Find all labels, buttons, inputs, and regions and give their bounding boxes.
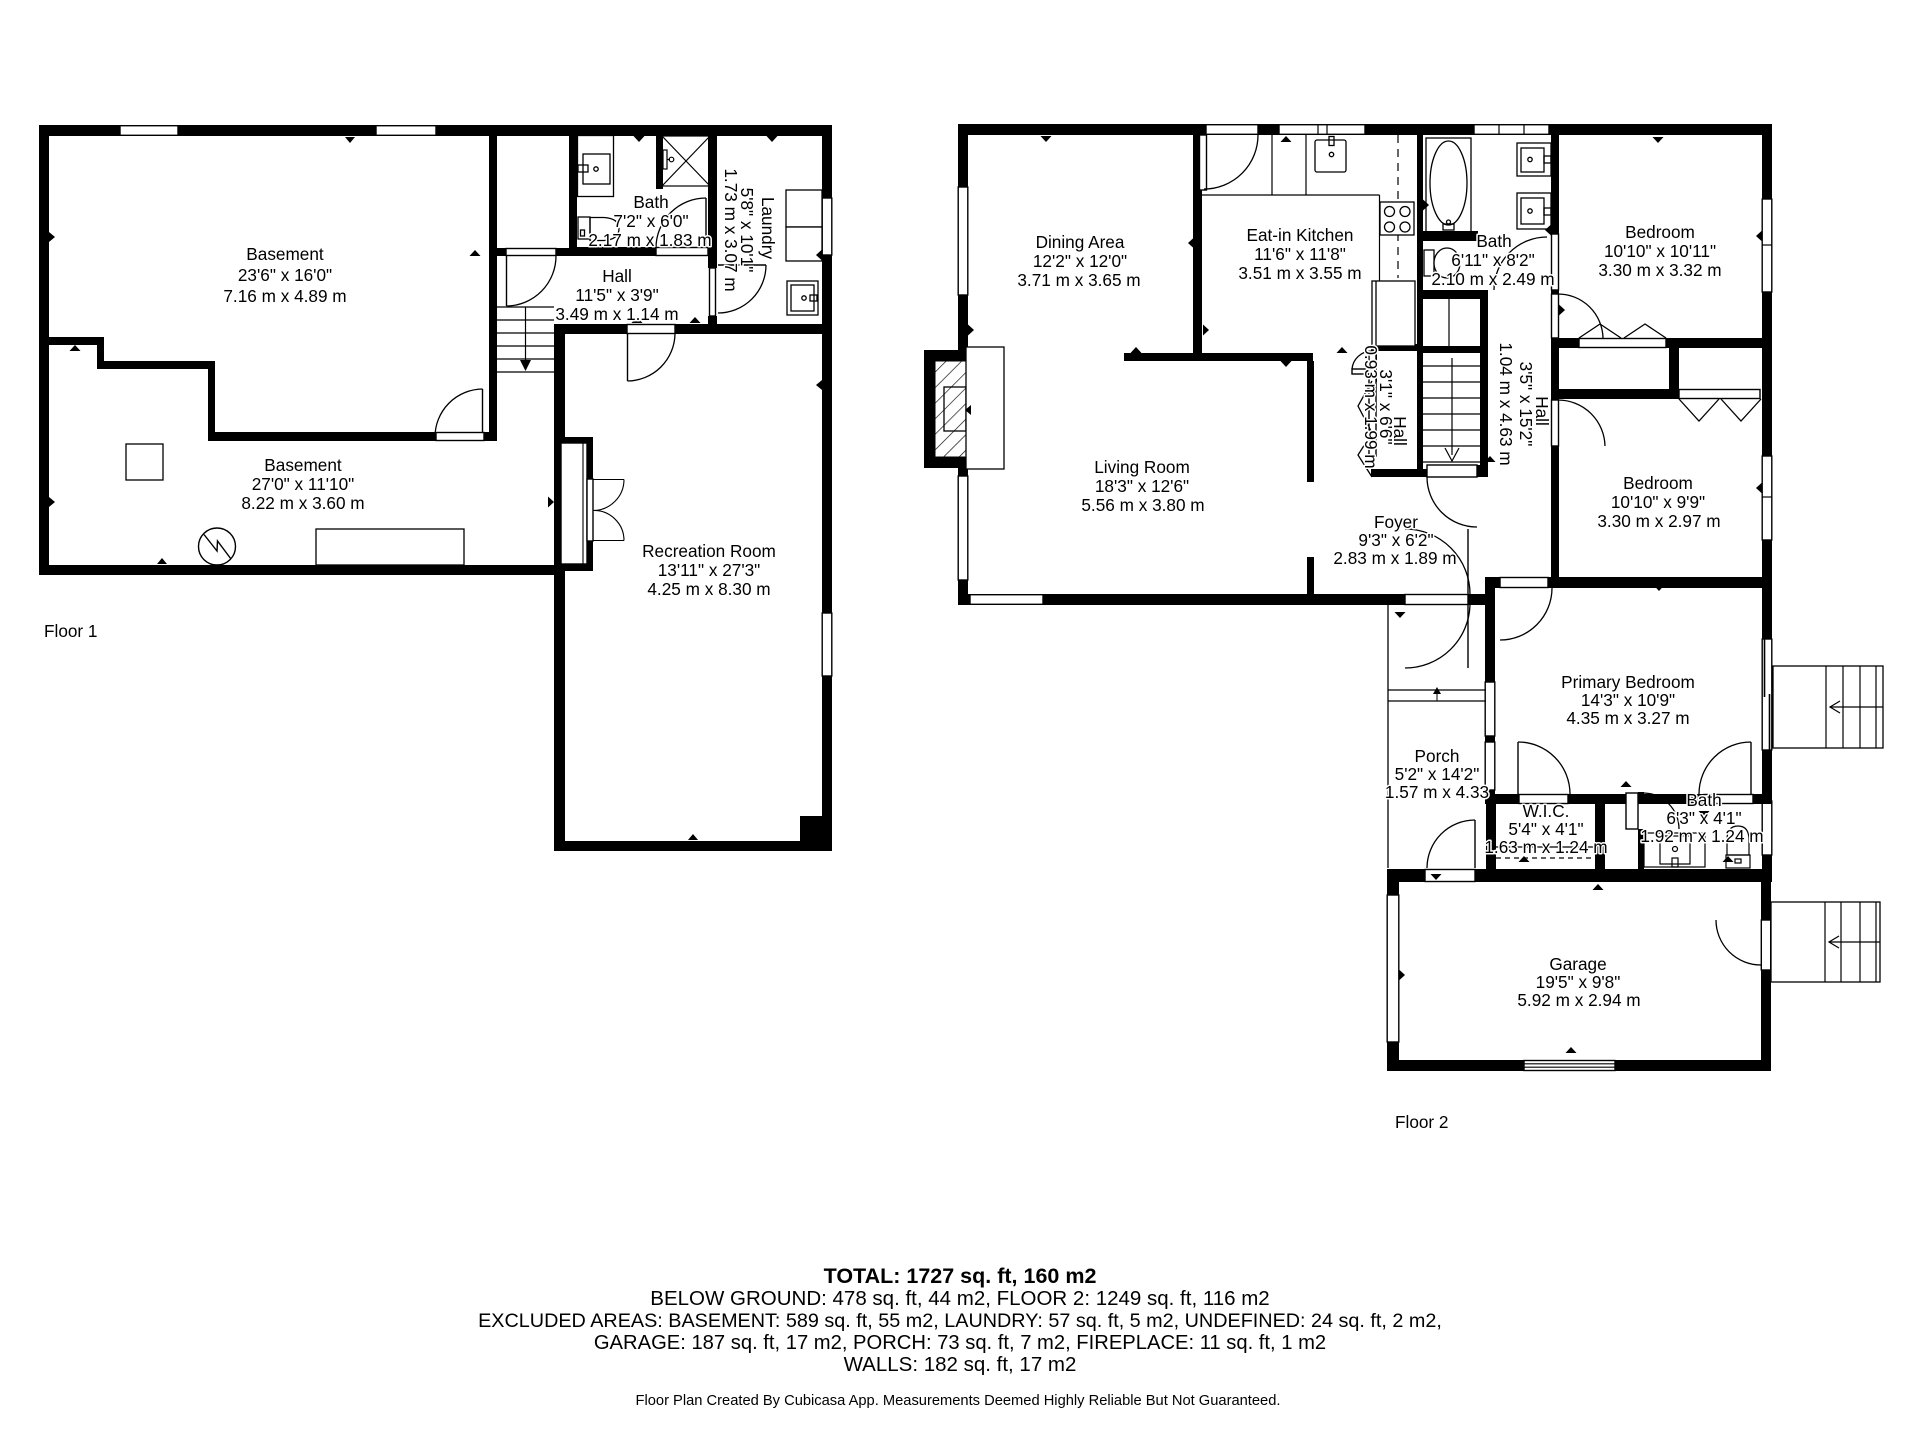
svg-text:Floor 2: Floor 2 xyxy=(1395,1112,1449,1132)
svg-text:8.22 m x 3.60 m: 8.22 m x 3.60 m xyxy=(241,493,364,513)
svg-text:7.16 m x 4.89 m: 7.16 m x 4.89 m xyxy=(223,286,346,306)
svg-text:1.57 m x 4.33: 1.57 m x 4.33 xyxy=(1385,782,1489,802)
svg-text:Primary Bedroom: Primary Bedroom xyxy=(1561,672,1695,692)
svg-text:EXCLUDED AREAS: BASEMENT: 589: EXCLUDED AREAS: BASEMENT: 589 sq. ft, 55… xyxy=(478,1310,1442,1332)
svg-text:Laundry: Laundry xyxy=(758,197,778,260)
svg-text:1.04 m x 4.63 m: 1.04 m x 4.63 m xyxy=(1496,342,1516,465)
svg-text:2.83 m x 1.89 m: 2.83 m x 1.89 m xyxy=(1333,548,1456,568)
svg-text:9'3" x 6'2": 9'3" x 6'2" xyxy=(1358,530,1433,550)
svg-text:3'5" x 15'2": 3'5" x 15'2" xyxy=(1516,362,1536,447)
svg-text:Foyer: Foyer xyxy=(1374,512,1418,532)
svg-text:10'10" x 9'9": 10'10" x 9'9" xyxy=(1611,492,1705,512)
svg-text:5.56 m x 3.80 m: 5.56 m x 3.80 m xyxy=(1081,495,1204,515)
svg-text:3.30 m x 3.32 m: 3.30 m x 3.32 m xyxy=(1598,260,1721,280)
svg-text:5.92 m x 2.94 m: 5.92 m x 2.94 m xyxy=(1517,990,1640,1010)
svg-text:Bath: Bath xyxy=(633,192,668,212)
svg-text:11'6" x 11'8": 11'6" x 11'8" xyxy=(1254,244,1346,264)
svg-text:BELOW GROUND: 478 sq. ft, 44 m: BELOW GROUND: 478 sq. ft, 44 m2, FLOOR 2… xyxy=(650,1287,1269,1310)
svg-text:3.51 m x 3.55 m: 3.51 m x 3.55 m xyxy=(1238,263,1361,283)
svg-text:0.93 m x 1.99 m: 0.93 m x 1.99 m xyxy=(1361,345,1381,468)
svg-text:Recreation Room: Recreation Room xyxy=(642,541,776,561)
svg-text:GARAGE: 187 sq. ft, 17 m2, POR: GARAGE: 187 sq. ft, 17 m2, PORCH: 73 sq.… xyxy=(594,1332,1326,1354)
svg-text:1.63 m x 1.24 m: 1.63 m x 1.24 m xyxy=(1484,837,1607,857)
svg-text:11'5" x 3'9": 11'5" x 3'9" xyxy=(575,285,658,305)
svg-text:6'11" x 8'2": 6'11" x 8'2" xyxy=(1451,250,1534,270)
svg-text:WALLS: 182 sq. ft, 17 m2: WALLS: 182 sq. ft, 17 m2 xyxy=(844,1353,1077,1376)
svg-text:Bedroom: Bedroom xyxy=(1625,222,1695,242)
svg-text:Eat-in Kitchen: Eat-in Kitchen xyxy=(1246,225,1353,245)
svg-text:W.I.C.: W.I.C. xyxy=(1523,801,1570,821)
svg-text:TOTAL: 1727 sq. ft, 160 m2: TOTAL: 1727 sq. ft, 160 m2 xyxy=(824,1264,1097,1288)
svg-text:1.92 m x 1.24 m: 1.92 m x 1.24 m xyxy=(1640,826,1763,846)
svg-text:Bath: Bath xyxy=(1476,231,1511,251)
svg-text:Basement: Basement xyxy=(246,244,324,264)
svg-text:7'2" x 6'0": 7'2" x 6'0" xyxy=(613,211,688,231)
svg-text:3.30 m x 2.97 m: 3.30 m x 2.97 m xyxy=(1597,511,1720,531)
svg-text:Bedroom: Bedroom xyxy=(1623,473,1693,493)
svg-text:2.10 m x 2.49 m: 2.10 m x 2.49 m xyxy=(1431,269,1554,289)
svg-text:19'5" x 9'8": 19'5" x 9'8" xyxy=(1536,972,1621,992)
svg-text:Basement: Basement xyxy=(264,455,342,475)
svg-text:3.71 m x 3.65 m: 3.71 m x 3.65 m xyxy=(1017,270,1140,290)
svg-text:5'2" x 14'2": 5'2" x 14'2" xyxy=(1395,764,1480,784)
svg-text:14'3" x 10'9": 14'3" x 10'9" xyxy=(1581,690,1675,710)
svg-text:12'2" x 12'0": 12'2" x 12'0" xyxy=(1033,251,1127,271)
svg-text:Hall: Hall xyxy=(602,266,632,286)
svg-text:6'3" x 4'1": 6'3" x 4'1" xyxy=(1666,808,1741,828)
svg-text:4.25 m x 8.30 m: 4.25 m x 8.30 m xyxy=(647,579,770,599)
svg-text:Garage: Garage xyxy=(1549,954,1606,974)
svg-text:1.73 m x 3.07 m: 1.73 m x 3.07 m xyxy=(721,168,741,291)
svg-text:23'6" x 16'0": 23'6" x 16'0" xyxy=(238,265,332,285)
svg-text:27'0" x 11'10": 27'0" x 11'10" xyxy=(252,474,355,494)
svg-text:Floor 1: Floor 1 xyxy=(44,621,98,641)
svg-text:Floor Plan Created By Cubicasa: Floor Plan Created By Cubicasa App. Meas… xyxy=(636,1393,1281,1409)
svg-text:Porch: Porch xyxy=(1415,746,1460,766)
svg-text:4.35 m x 3.27 m: 4.35 m x 3.27 m xyxy=(1566,708,1689,728)
svg-text:3.49 m x 1.14 m: 3.49 m x 1.14 m xyxy=(555,304,678,324)
svg-text:10'10" x 10'11": 10'10" x 10'11" xyxy=(1604,241,1716,261)
svg-text:Dining Area: Dining Area xyxy=(1036,232,1125,252)
svg-text:13'11" x 27'3": 13'11" x 27'3" xyxy=(658,560,761,580)
svg-text:18'3" x 12'6": 18'3" x 12'6" xyxy=(1095,476,1189,496)
svg-text:Bath: Bath xyxy=(1686,790,1721,810)
svg-text:Living Room: Living Room xyxy=(1094,457,1190,477)
svg-text:5'4" x 4'1": 5'4" x 4'1" xyxy=(1508,819,1583,839)
svg-text:2.17 m x 1.83 m: 2.17 m x 1.83 m xyxy=(588,230,711,250)
